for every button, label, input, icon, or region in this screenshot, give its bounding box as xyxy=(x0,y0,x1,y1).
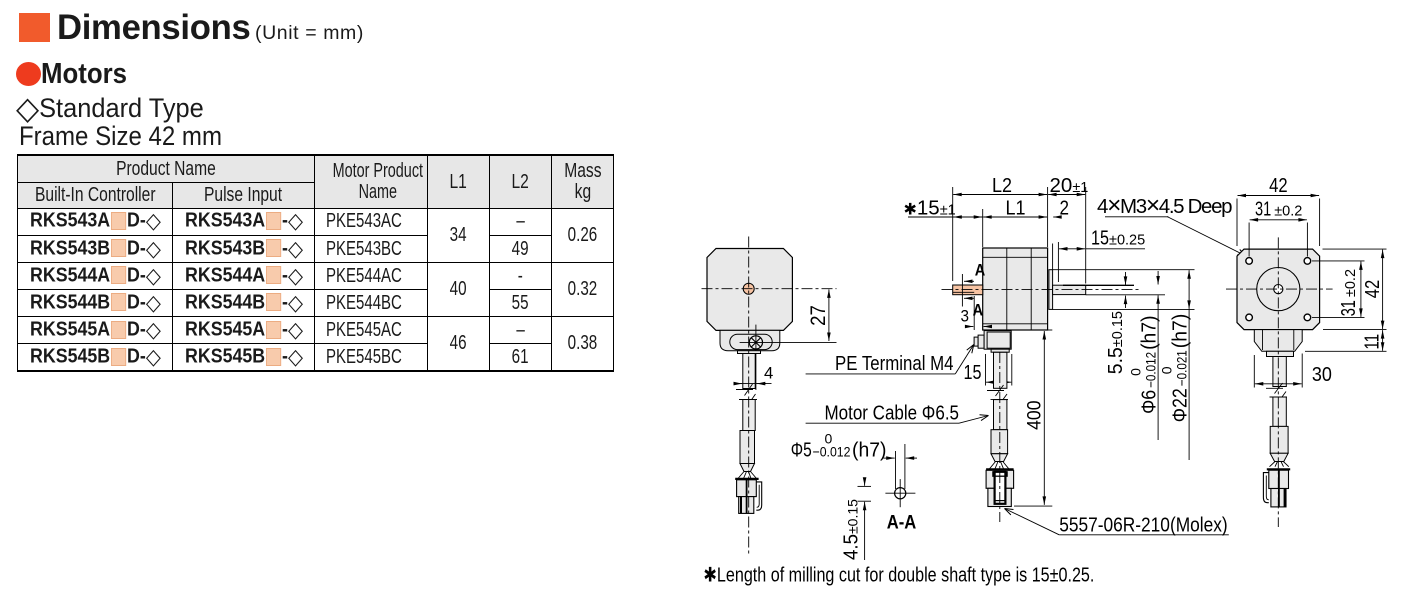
svg-text:(h7): (h7) xyxy=(852,439,887,462)
svg-text:−0.012: −0.012 xyxy=(1143,352,1159,388)
svg-text:0: 0 xyxy=(1128,368,1144,376)
svg-text:4: 4 xyxy=(764,364,773,383)
svg-text:30: 30 xyxy=(1312,363,1332,386)
svg-text:27: 27 xyxy=(807,305,830,326)
svg-text:5557-06R-210(Molex): 5557-06R-210(Molex) xyxy=(1059,513,1228,536)
svg-text:15±0.25: 15±0.25 xyxy=(1091,227,1145,250)
svg-text:400: 400 xyxy=(1024,400,1046,430)
svg-text:0: 0 xyxy=(825,431,833,447)
svg-text:31±0.2: 31±0.2 xyxy=(1337,269,1360,316)
svg-text:Motor Cable Φ6.5: Motor Cable Φ6.5 xyxy=(825,402,960,425)
svg-text:11: 11 xyxy=(1361,334,1384,350)
svg-text:31±0.2: 31±0.2 xyxy=(1255,197,1302,220)
svg-text:Φ22: Φ22 xyxy=(1169,388,1192,422)
svg-text:(h7): (h7) xyxy=(1169,314,1192,349)
svg-text:4×M3×4.5 Deep: 4×M3×4.5 Deep xyxy=(1097,192,1232,219)
svg-text:0: 0 xyxy=(1159,366,1175,374)
svg-text:3: 3 xyxy=(961,307,970,326)
svg-text:5.5±0.15: 5.5±0.15 xyxy=(1104,311,1127,374)
svg-text:42: 42 xyxy=(1269,174,1288,197)
svg-text:PE Terminal M4: PE Terminal M4 xyxy=(835,352,954,375)
svg-text:(h7): (h7) xyxy=(1138,315,1161,350)
svg-text:15: 15 xyxy=(964,361,982,384)
svg-text:42: 42 xyxy=(1361,280,1384,299)
svg-text:✱15±1: ✱15±1 xyxy=(904,197,956,220)
svg-text:✱Length of milling cut for dou: ✱Length of milling cut for double shaft … xyxy=(703,565,1094,587)
svg-text:Φ5: Φ5 xyxy=(791,439,812,462)
svg-text:−0.021: −0.021 xyxy=(1174,350,1190,386)
svg-text:2: 2 xyxy=(1060,197,1070,220)
svg-text:Φ6: Φ6 xyxy=(1138,390,1161,414)
svg-text:4.5±0.15: 4.5±0.15 xyxy=(841,499,863,560)
svg-text:A-A: A-A xyxy=(887,512,917,534)
svg-text:L2: L2 xyxy=(992,175,1012,197)
svg-text:A: A xyxy=(975,261,986,280)
svg-text:20±1: 20±1 xyxy=(1050,174,1089,197)
svg-text:L1: L1 xyxy=(1006,198,1026,220)
